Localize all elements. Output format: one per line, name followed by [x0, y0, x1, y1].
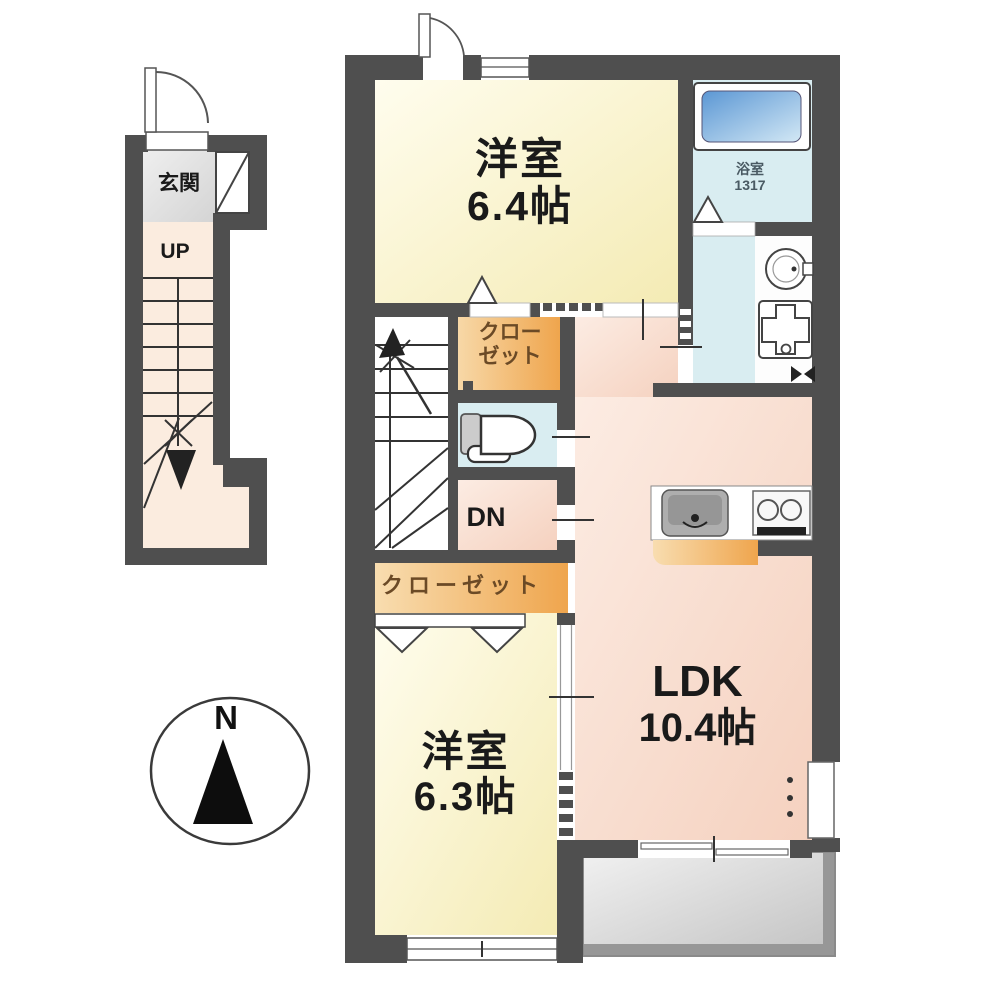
entrance-unit [125, 68, 267, 565]
room-bottom-name: 洋室 [421, 728, 509, 775]
washroom-entry [678, 345, 693, 383]
floorplan-canvas: 玄関 UP 洋室6.4帖 浴室1317 クローゼット DN クローゼット 洋室6… [0, 0, 1000, 1000]
dn-label: DN [446, 502, 526, 532]
ldk-label: LDK10.4帖 [590, 657, 805, 751]
closet-top-label: クローゼット [450, 321, 570, 368]
room-bottom-label: 洋室6.3帖 [363, 728, 568, 820]
balcony-door-icon [419, 14, 464, 80]
bathroom-size: 1317 [700, 178, 800, 194]
room-top-name: 洋室 [475, 136, 565, 184]
room-top-size: 6.4帖 [395, 184, 645, 230]
entry-door-icon [145, 68, 208, 150]
toilet-door [557, 430, 575, 465]
hall-ldk-door [557, 505, 575, 540]
genkan-label: 玄関 [143, 172, 215, 196]
washer-pan-icon [759, 301, 812, 358]
compass-north-label: N [196, 700, 256, 737]
room-top-label: 洋室6.4帖 [395, 136, 645, 230]
closet-bottom-label: クローゼット [372, 574, 552, 599]
window-bottom-icon [407, 938, 557, 960]
balcony [583, 852, 835, 956]
bathtub-icon [694, 83, 810, 150]
closet-top-line2: ゼット [450, 345, 570, 369]
up-label: UP [140, 240, 210, 264]
ldk-floor [575, 397, 812, 840]
ldk-name: LDK [652, 657, 742, 706]
room-top-entry [603, 303, 678, 317]
bathroom-name: 浴室 [736, 161, 764, 177]
bathroom-label: 浴室1317 [700, 162, 800, 193]
closet-top-door [470, 303, 530, 317]
washroom-wall-dashes [680, 309, 691, 339]
shoe-cabinet-icon [216, 152, 249, 213]
north-arrow-icon [193, 739, 253, 824]
stove-icon [753, 491, 810, 535]
counter-front [653, 540, 758, 565]
window-top-icon [481, 58, 529, 77]
closet-top-line1: クロー [479, 321, 542, 344]
bathroom-door [693, 222, 755, 236]
ldk-size: 10.4帖 [590, 706, 805, 751]
hinge-dot [463, 381, 473, 391]
room-bottom-size: 6.3帖 [363, 775, 568, 820]
